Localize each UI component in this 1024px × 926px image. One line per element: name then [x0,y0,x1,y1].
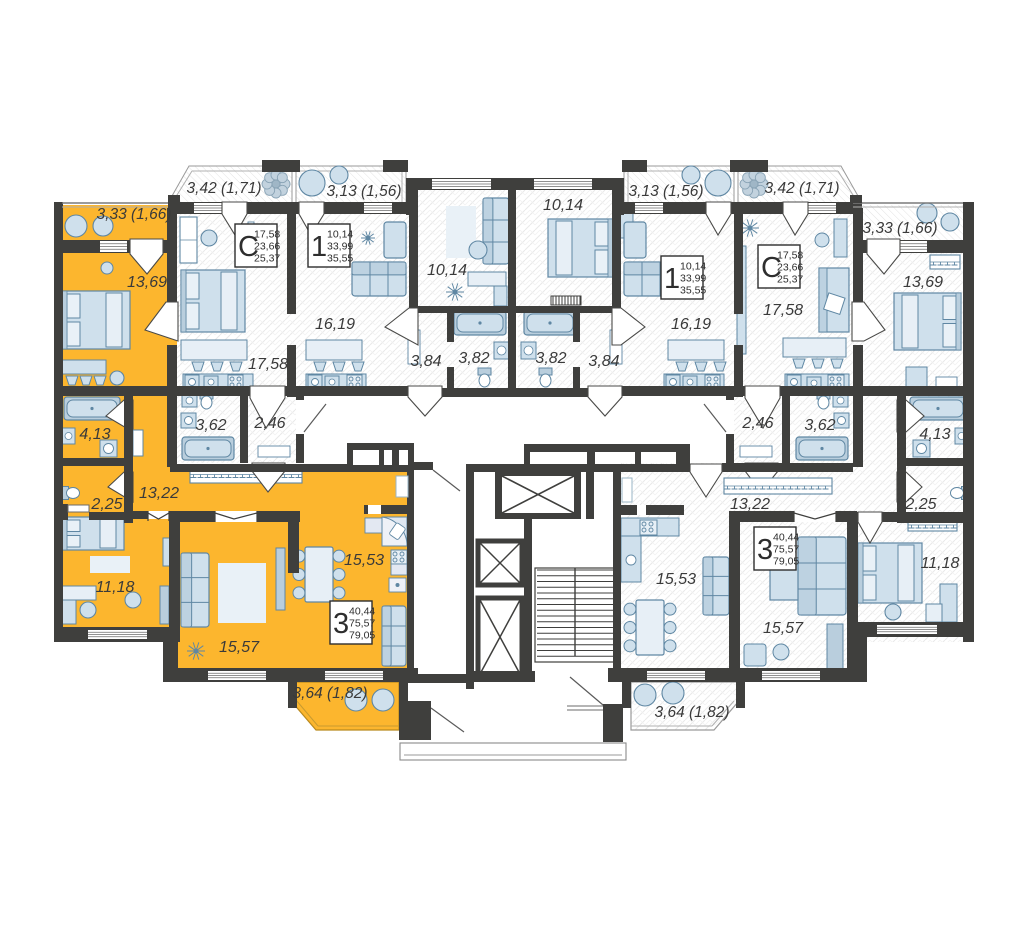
svg-text:15,57: 15,57 [763,620,804,637]
svg-text:3,84: 3,84 [588,353,619,370]
svg-text:2,46: 2,46 [253,415,285,432]
svg-text:3,33 (1,66): 3,33 (1,66) [97,206,172,223]
svg-text:33,99: 33,99 [327,241,353,253]
svg-text:1: 1 [311,231,327,263]
svg-text:75,57: 75,57 [773,544,799,556]
svg-text:13,22: 13,22 [730,496,770,513]
svg-text:2,25: 2,25 [904,496,936,513]
svg-text:11,18: 11,18 [921,555,960,572]
svg-text:3,42 (1,71): 3,42 (1,71) [765,180,840,197]
svg-text:10,14: 10,14 [543,197,583,214]
svg-text:15,53: 15,53 [344,552,384,569]
svg-text:3,84: 3,84 [410,353,441,370]
svg-text:35,55: 35,55 [327,253,353,265]
svg-text:3,82: 3,82 [458,350,489,367]
svg-text:3,13 (1,56): 3,13 (1,56) [327,183,402,200]
svg-text:10,14: 10,14 [327,229,353,241]
svg-text:3,13 (1,56): 3,13 (1,56) [629,183,704,200]
svg-text:3,64 (1,82): 3,64 (1,82) [293,685,368,702]
svg-text:16,19: 16,19 [671,316,711,333]
svg-text:3,62: 3,62 [195,417,226,434]
svg-text:25,37: 25,37 [777,274,803,286]
svg-text:2,46: 2,46 [741,415,773,432]
svg-text:79,05: 79,05 [349,630,375,642]
svg-text:75,57: 75,57 [349,618,375,630]
svg-text:4,13: 4,13 [79,426,110,443]
svg-text:13,69: 13,69 [127,274,167,291]
svg-text:3,64 (1,82): 3,64 (1,82) [655,704,730,721]
svg-text:35,55: 35,55 [680,285,706,297]
svg-text:16,19: 16,19 [315,316,355,333]
svg-text:10,14: 10,14 [427,262,467,279]
svg-text:17,58: 17,58 [254,229,280,241]
svg-text:3: 3 [757,534,773,566]
svg-text:23,66: 23,66 [777,262,803,274]
svg-text:40,44: 40,44 [773,532,799,544]
svg-text:17,58: 17,58 [248,356,288,373]
svg-text:3,62: 3,62 [804,417,835,434]
svg-text:2,25: 2,25 [90,496,122,513]
svg-text:1: 1 [664,263,680,295]
svg-text:25,37: 25,37 [254,253,280,265]
svg-text:15,57: 15,57 [219,639,260,656]
svg-text:4,13: 4,13 [919,426,950,443]
svg-text:3: 3 [333,608,349,640]
svg-text:15,53: 15,53 [656,571,696,588]
svg-text:79,05: 79,05 [773,556,799,568]
svg-text:10,14: 10,14 [680,261,706,273]
svg-text:40,44: 40,44 [349,606,375,618]
svg-text:23,66: 23,66 [254,241,280,253]
svg-text:11,18: 11,18 [96,579,135,596]
svg-text:13,69: 13,69 [903,274,943,291]
svg-text:17,58: 17,58 [763,302,803,319]
svg-text:3,33 (1,66): 3,33 (1,66) [863,220,938,237]
svg-text:3,42 (1,71): 3,42 (1,71) [187,180,262,197]
svg-text:3,82: 3,82 [535,350,566,367]
svg-text:33,99: 33,99 [680,273,706,285]
svg-text:13,22: 13,22 [139,485,179,502]
svg-text:17,58: 17,58 [777,250,803,262]
